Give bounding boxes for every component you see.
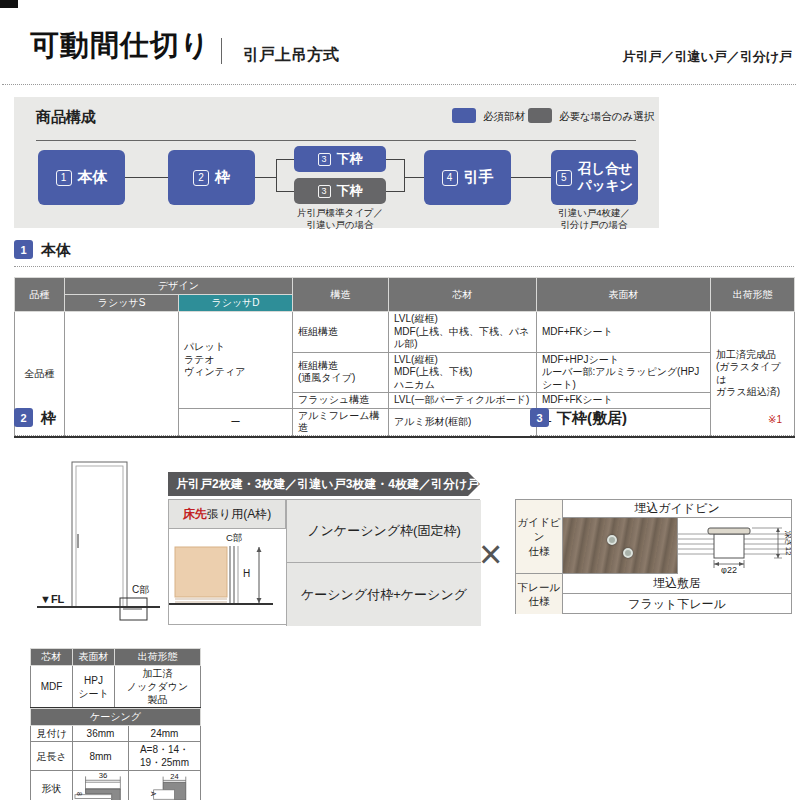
- col-header-structure: 構造: [293, 278, 389, 312]
- shape-cell-36: 36 8: [73, 771, 129, 800]
- flow-node-body: 1 本体: [38, 150, 125, 205]
- section-badge-sill: 3: [530, 408, 549, 427]
- casing-table-title: ケーシング: [31, 709, 201, 726]
- frame-option-casing: ケーシング付枠+ケーシング: [286, 563, 481, 626]
- guide-pin-value: 埋込ガイドピン: [563, 500, 791, 518]
- sill-spec-panel: ガイドピン 仕様 埋込ガイドピン φ22 深さ12: [515, 499, 792, 614]
- section-title-frame: 枠: [41, 409, 56, 428]
- col-header-lasissa-s: ラシッサS: [65, 295, 179, 312]
- catalog-page: 可動間仕切り 引戸上吊方式 片引戸／引違い戸／引分け戸 商品構成 必須部材 必要…: [0, 0, 800, 800]
- dim-24-label: 24: [170, 772, 178, 781]
- structure-cell: 框組構造: [293, 312, 389, 353]
- connector-line: [386, 159, 404, 160]
- core-cell: LVL(一部パーティクルボード): [389, 393, 537, 409]
- section-title-body: 本体: [41, 241, 71, 260]
- col-header-core: 芯材: [389, 278, 537, 312]
- height-label: H: [243, 568, 250, 579]
- connector-line: [276, 159, 294, 160]
- frame-type-rest: 張り用(A枠): [207, 506, 271, 523]
- connector-line: [404, 177, 424, 178]
- face-value-24: 24mm: [129, 726, 201, 742]
- flow-node-frame: 2 枠: [168, 150, 255, 205]
- structure-cell: 框組構造 (通風タイプ): [293, 352, 389, 393]
- section-badge-body: 1: [14, 240, 33, 259]
- connector-line: [125, 177, 168, 178]
- dim-36-label: 36: [99, 772, 108, 780]
- connector-line: [404, 159, 405, 192]
- rail-value-sill: 埋込敷居: [563, 574, 791, 594]
- frame-type-red: 床先: [183, 506, 207, 523]
- page-corner-mark: [0, 0, 18, 8]
- frame-type-header: 床先張り用(A枠): [169, 500, 286, 529]
- lasissa-d-cell: ー: [179, 408, 293, 437]
- title-divider: [221, 38, 222, 64]
- legend-optional-label: 必要な場合のみ選択: [559, 110, 654, 124]
- guide-pin-icon: [607, 535, 617, 545]
- door-type-list: 片引戸／引違い戸／引分け戸: [622, 48, 792, 66]
- structure-cell: アルミフレーム構造: [293, 408, 389, 437]
- connector-line: [386, 191, 404, 192]
- composition-rule: [36, 140, 636, 141]
- col-header-surface: 表面材: [537, 278, 711, 312]
- casing-size-table: ケーシング 見付け 36mm 24mm 足長さ 8mm A=8・14・19・25…: [30, 708, 201, 800]
- connector-line: [255, 177, 276, 178]
- casing-profile-36-diagram: 36 8: [74, 772, 128, 800]
- flow-caption-sill: 片引戸標準タイプ／ 引違い戸の場合: [270, 207, 410, 231]
- col-header-shipping: 出荷形態: [115, 649, 201, 666]
- core-cell: LVL(縦框) MDF(上桟、中桟、下桟、パネル部): [389, 312, 537, 353]
- row-label-shape: 形状: [31, 771, 73, 800]
- col-header-kind: 品種: [15, 278, 65, 312]
- node-number: 3: [318, 153, 331, 166]
- legend-required-label: 必須部材: [483, 110, 525, 124]
- lasissa-s-cell: [65, 312, 179, 437]
- guide-pin-icon: [623, 548, 633, 558]
- col-header-shipping: 出荷形態: [711, 278, 795, 312]
- lasissa-d-cell: パレット ラテオ ヴィンティア: [179, 312, 293, 409]
- flow-node-handle: 4 引手: [424, 150, 511, 205]
- c-part-label: C部: [132, 584, 149, 595]
- connector-line: [511, 177, 551, 178]
- core-cell: LVL(縦框) MDF(上桟、下桟) ハニカム: [389, 352, 537, 393]
- leg-value-a: A=8・14・19・25mm: [129, 742, 201, 771]
- surface-value: HPJ シート: [73, 666, 115, 709]
- section-rule: [14, 435, 490, 436]
- node-label: 下枠: [337, 150, 363, 168]
- shape-cell-24: 24 A: [129, 771, 201, 800]
- node-number: 5: [556, 170, 572, 186]
- node-label: 枠: [215, 168, 230, 187]
- section-badge-frame: 2: [14, 408, 33, 427]
- guide-pin-row-label: ガイドピン 仕様: [516, 500, 563, 574]
- shipping-value: 加工済 ノックダウン 製品: [115, 666, 201, 709]
- frame-section-diagram: C部 H: [169, 529, 286, 626]
- page-title: 可動間仕切り: [30, 26, 211, 66]
- node-number: 1: [56, 170, 72, 186]
- structure-cell: フラッシュ構造: [293, 393, 389, 409]
- guide-pin-section-diagram: φ22 深さ12: [678, 518, 791, 574]
- frame-variant-banner: 片引戸2枚建・3枚建／引違い戸3枚建・4枚建／引分け戸: [168, 472, 480, 496]
- legend-optional-swatch: [528, 108, 552, 123]
- connector-line: [276, 159, 277, 192]
- flow-caption-packing: 引違い戸4枚建／ 引分け戸の場合: [524, 207, 664, 231]
- header-rule: [2, 84, 796, 85]
- body-spec-table: 品種 デザイン 構造 芯材 表面材 出荷形態 ラシッサS ラシッサD 全品種 パ…: [14, 277, 795, 438]
- node-label: 下枠: [337, 182, 363, 200]
- surface-cell: MDF+HPJシート ルーバー部:アルミラッピング(HPJシート): [537, 352, 711, 393]
- dim-8-label: 8: [76, 792, 83, 796]
- node-label: 引手: [464, 168, 494, 187]
- node-label: 召し合せ パッキン: [578, 161, 633, 193]
- flow-node-sill-optional: 3 下枠: [294, 178, 386, 204]
- col-header-core: 芯材: [31, 649, 73, 666]
- frame-option-noncasing: ノンケーシング枠(固定枠): [286, 500, 481, 563]
- guide-pin-photo: [563, 518, 678, 574]
- pin-depth-label: 深さ12: [784, 530, 791, 556]
- core-value: MDF: [31, 666, 73, 709]
- core-cell: アルミ形材(框部): [389, 408, 537, 437]
- row-label-face: 見付け: [31, 726, 73, 742]
- pin-diameter-label: φ22: [721, 565, 737, 574]
- connector-line: [276, 191, 294, 192]
- leg-value-8: 8mm: [73, 742, 129, 771]
- col-header-lasissa-d: ラシッサD: [179, 295, 293, 312]
- fl-label: ▼FL: [40, 593, 65, 605]
- node-label: 本体: [78, 168, 108, 187]
- multiply-sign: ×: [479, 532, 502, 576]
- c-part-label: C部: [226, 532, 242, 543]
- node-number: 4: [442, 170, 458, 186]
- row-label-leg: 足長さ: [31, 742, 73, 771]
- rail-value-flat: フラット下レール: [563, 594, 791, 614]
- section-rule: [530, 435, 794, 436]
- section-rule: [14, 266, 794, 267]
- casing-profile-24-diagram: 24 A: [131, 772, 199, 800]
- flow-node-packing: 5 召し合せ パッキン: [551, 150, 638, 205]
- section-title-sill: 下枠(敷居): [557, 409, 627, 428]
- col-header-design: デザイン: [65, 278, 293, 295]
- frame-option-table: 床先張り用(A枠) C部 H ノンケーシング枠(固定枠) ケーシング付枠+ケーシ…: [168, 499, 480, 625]
- door-elevation-diagram: ▼FL C部: [32, 452, 167, 632]
- face-value-36: 36mm: [73, 726, 129, 742]
- node-number: 3: [318, 185, 331, 198]
- composition-panel: 商品構成 必須部材 必要な場合のみ選択 1 本体 2 枠 3 下枠 3: [14, 97, 659, 228]
- casing-material-table: 芯材 表面材 出荷形態 MDF HPJ シート 加工済 ノックダウン 製品: [30, 648, 201, 709]
- footnote-marker: ※1: [768, 414, 782, 425]
- dim-a-label: A: [149, 791, 156, 796]
- legend-required-swatch: [452, 108, 476, 123]
- flow-node-sill-required: 3 下枠: [294, 146, 386, 172]
- surface-cell: MDF+FKシート: [537, 393, 711, 409]
- composition-title: 商品構成: [36, 108, 96, 127]
- surface-cell: MDF+FKシート: [537, 312, 711, 353]
- node-number: 2: [193, 170, 209, 186]
- rail-row-label: 下レール 仕様: [516, 574, 563, 614]
- page-subtitle: 引戸上吊方式: [243, 45, 339, 66]
- col-header-surface: 表面材: [73, 649, 115, 666]
